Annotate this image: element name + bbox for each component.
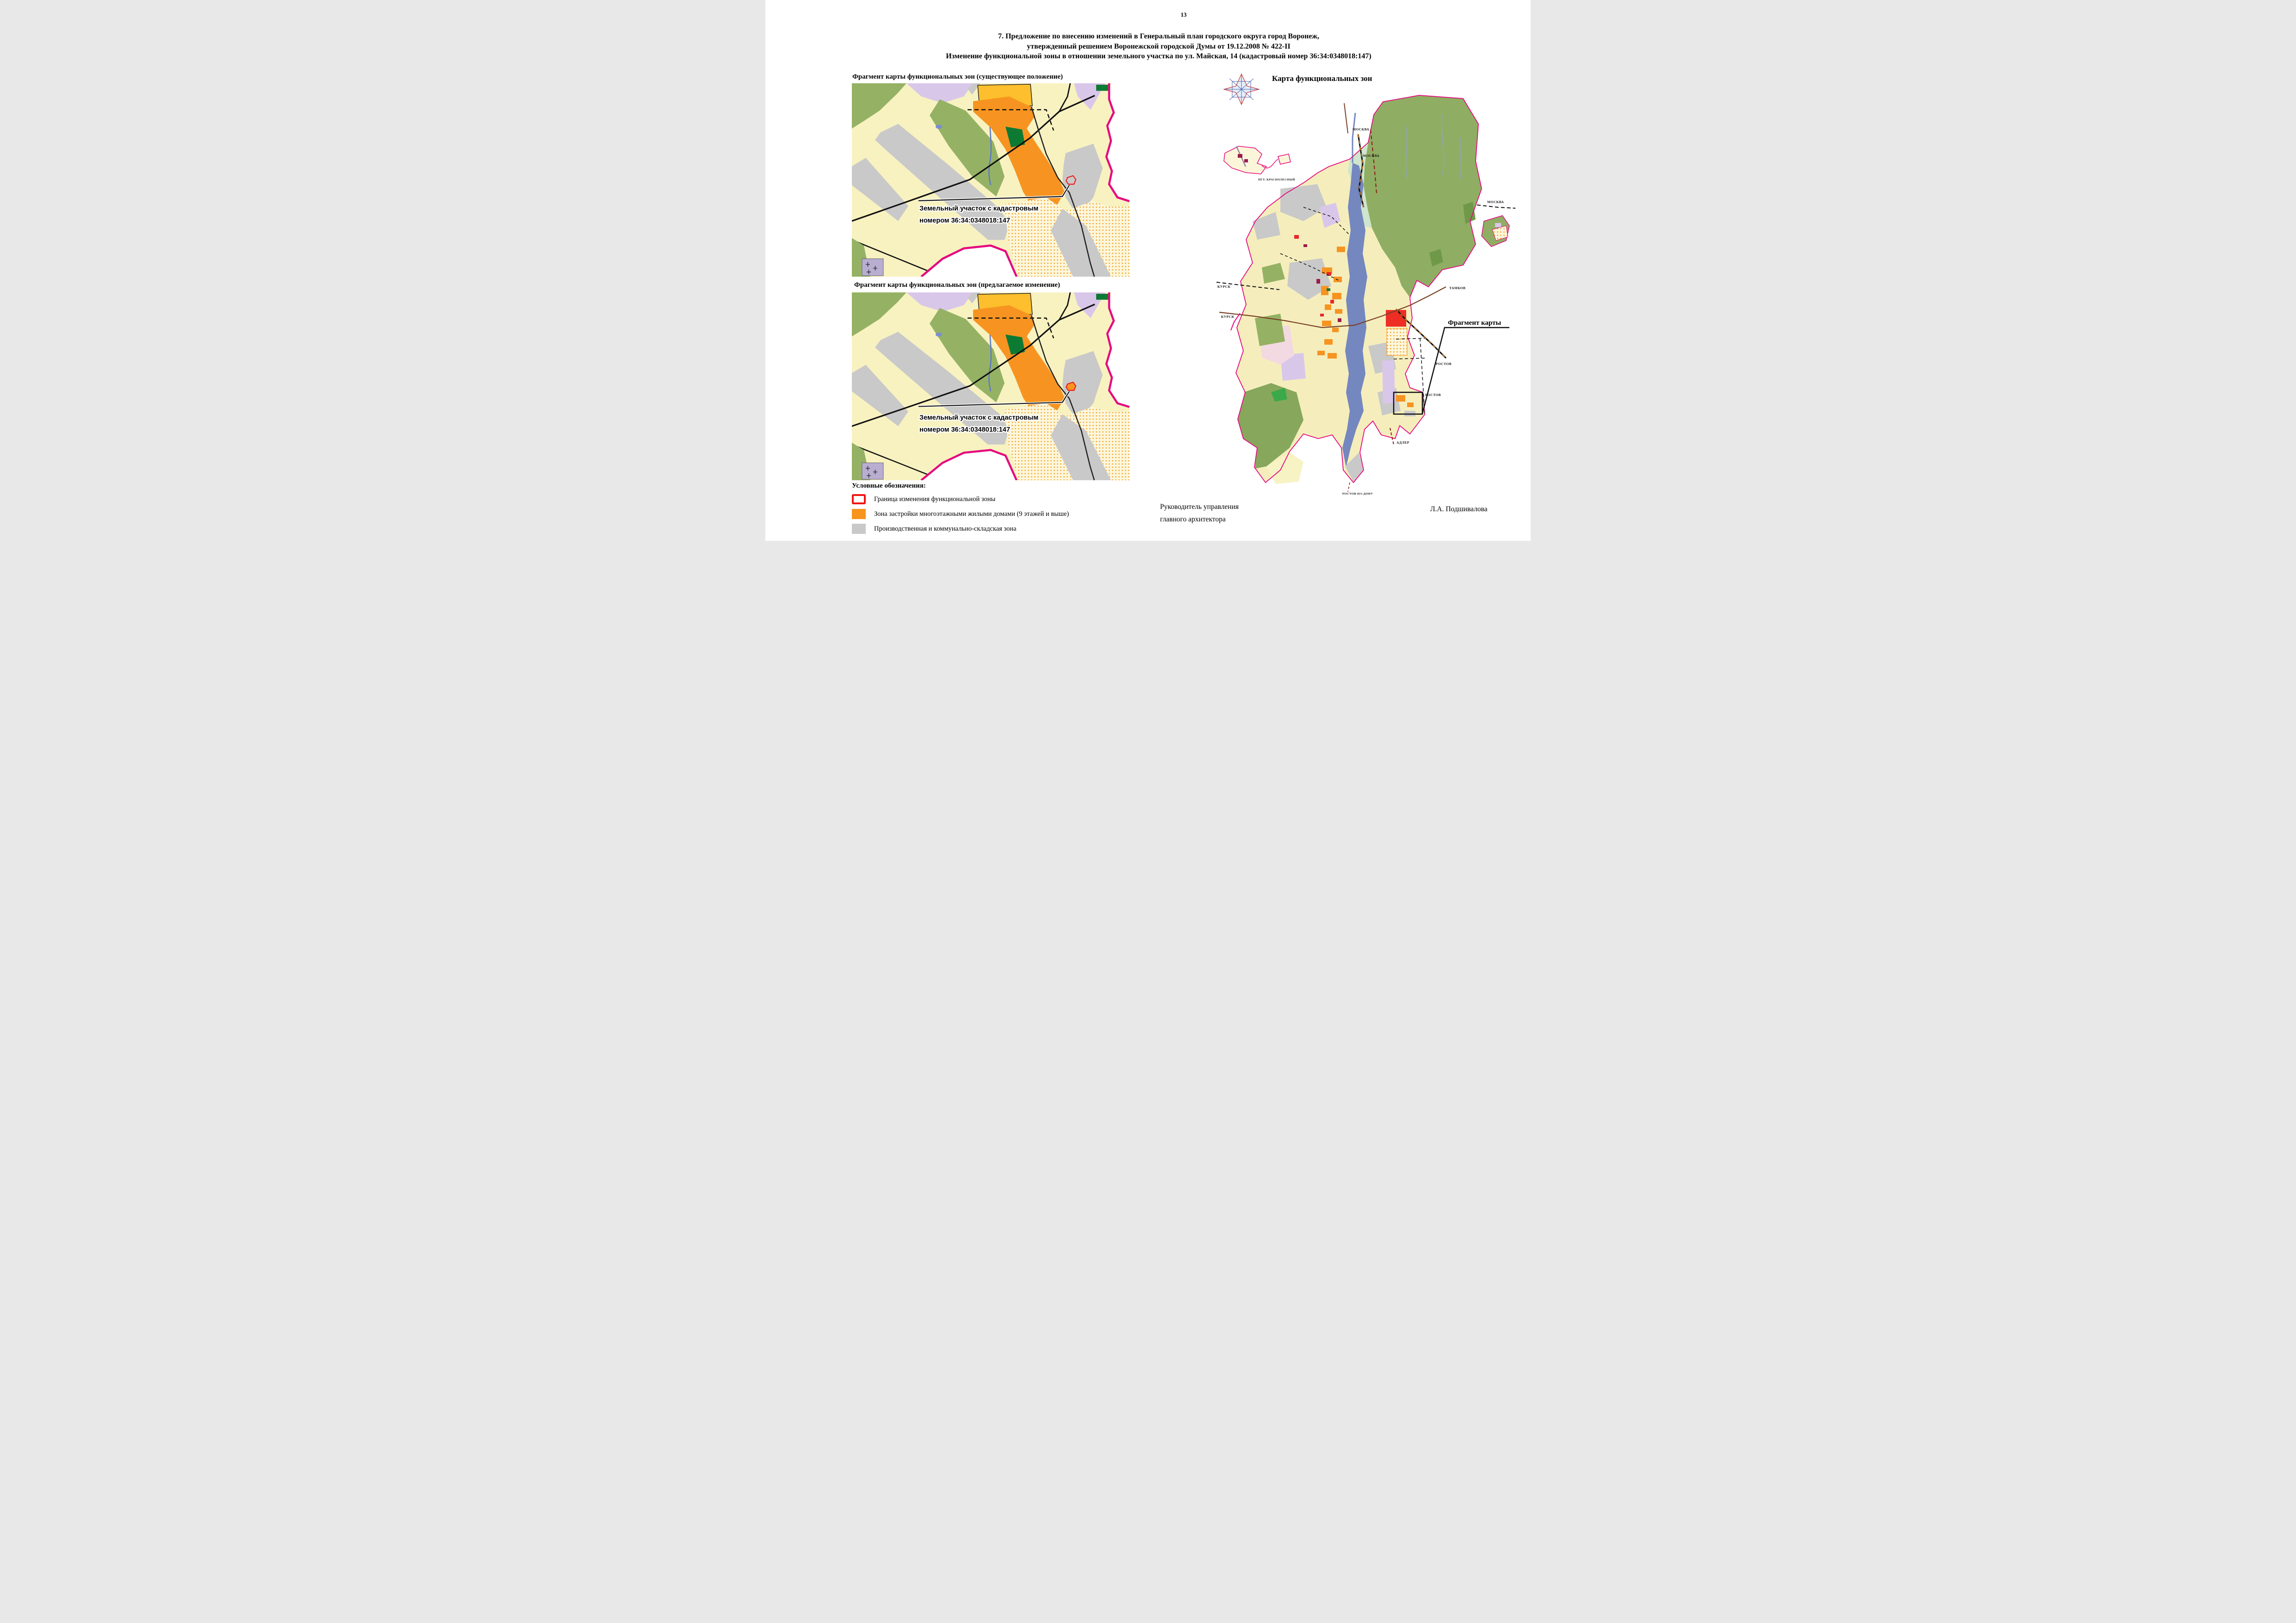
- fragment-map-existing-graphic: [852, 83, 1129, 277]
- legend-label: Производственная и коммунально-складская…: [874, 525, 1017, 533]
- boundary-swatch: [852, 494, 866, 504]
- industrial-swatch: [852, 524, 866, 534]
- signature-role: Руководитель управления главного архитек…: [1160, 501, 1239, 526]
- existing-map-heading: Фрагмент карты функциональных зон (сущес…: [852, 73, 1063, 81]
- fragment-map-proposed-graphic: [852, 292, 1129, 480]
- parcel-callout-line-2: номером 36:34:0348018:147: [919, 215, 1038, 227]
- proposed-map-heading: Фрагмент карты функциональных зон (предл…: [854, 281, 1060, 289]
- label-adler: АДЛЕР: [1396, 440, 1409, 445]
- overview-map-graphic: Фрагмент карты МОСКВА МОСКВА МОСКВА КУРС…: [1211, 68, 1531, 531]
- compass-rose: [1224, 74, 1259, 105]
- document-title: 7. Предложение по внесению изменений в Г…: [830, 31, 1487, 62]
- title-line-2: утвержденный решением Воронежской городс…: [830, 42, 1487, 52]
- parcel-callout-line-1: Земельный участок с кадастровым: [919, 412, 1038, 424]
- fragment-leader-line: [1422, 328, 1509, 414]
- fragment-map-proposed: Земельный участок с кадастровым номером …: [852, 292, 1129, 480]
- signature-name: Л.А. Подшивалова: [1430, 505, 1488, 514]
- label-moscow-3: МОСКВА: [1487, 200, 1504, 204]
- north-east-exclave: [1482, 216, 1509, 247]
- parcel-callout: Земельный участок с кадастровым номером …: [919, 412, 1038, 436]
- legend-heading: Условные обозначения:: [852, 482, 1139, 490]
- fragment-map-existing: Земельный участок с кадастровым номером …: [852, 83, 1129, 277]
- legend-label: Зона застройки многоэтажными жилыми дома…: [874, 510, 1069, 518]
- krasnolesny-exclave: [1224, 146, 1291, 174]
- signature-role-line-2: главного архитектора: [1160, 513, 1239, 526]
- legend-item-boundary: Граница изменения функциональной зоны: [852, 494, 1139, 505]
- parcel-callout: Земельный участок с кадастровым номером …: [919, 203, 1038, 227]
- legend-item-residential: Зона застройки многоэтажными жилыми дома…: [852, 508, 1139, 520]
- label-tambov: ТАМБОВ: [1449, 286, 1465, 290]
- document-page: 13 7. Предложение по внесению изменений …: [765, 0, 1531, 541]
- label-kursk-1: КУРСК: [1217, 285, 1230, 289]
- residential-swatch: [852, 509, 866, 519]
- label-rostov-1: РОСТОВ: [1436, 362, 1452, 366]
- parcel-callout-line-2: номером 36:34:0348018:147: [919, 424, 1038, 436]
- title-line-1: 7. Предложение по внесению изменений в Г…: [830, 31, 1487, 42]
- label-krasnolesny: ПГТ. КРАСНОЛЕСНЫЙ: [1258, 178, 1295, 181]
- parcel-callout-line-1: Земельный участок с кадастровым: [919, 203, 1038, 215]
- overview-map: Фрагмент карты МОСКВА МОСКВА МОСКВА КУРС…: [1211, 68, 1531, 531]
- legend-item-industrial: Производственная и коммунально-складская…: [852, 523, 1139, 534]
- page-number: 13: [1170, 11, 1198, 19]
- signature-role-line-1: Руководитель управления: [1160, 501, 1239, 513]
- label-rostov-2: РОСТОВ: [1425, 393, 1441, 397]
- label-rostov-na-donu: РОСТОВ-НА-ДОНУ: [1342, 492, 1373, 496]
- fragment-callout-label: Фрагмент карты: [1448, 319, 1501, 327]
- label-moscow-1: МОСКВА: [1353, 127, 1369, 131]
- legend: Условные обозначения: Граница изменения …: [852, 482, 1139, 538]
- label-moscow-2: МОСКВА: [1363, 154, 1379, 158]
- label-kursk-2: КУРСК: [1221, 315, 1234, 319]
- legend-label: Граница изменения функциональной зоны: [874, 496, 995, 503]
- title-line-3: Изменение функциональной зоны в отношени…: [830, 51, 1487, 62]
